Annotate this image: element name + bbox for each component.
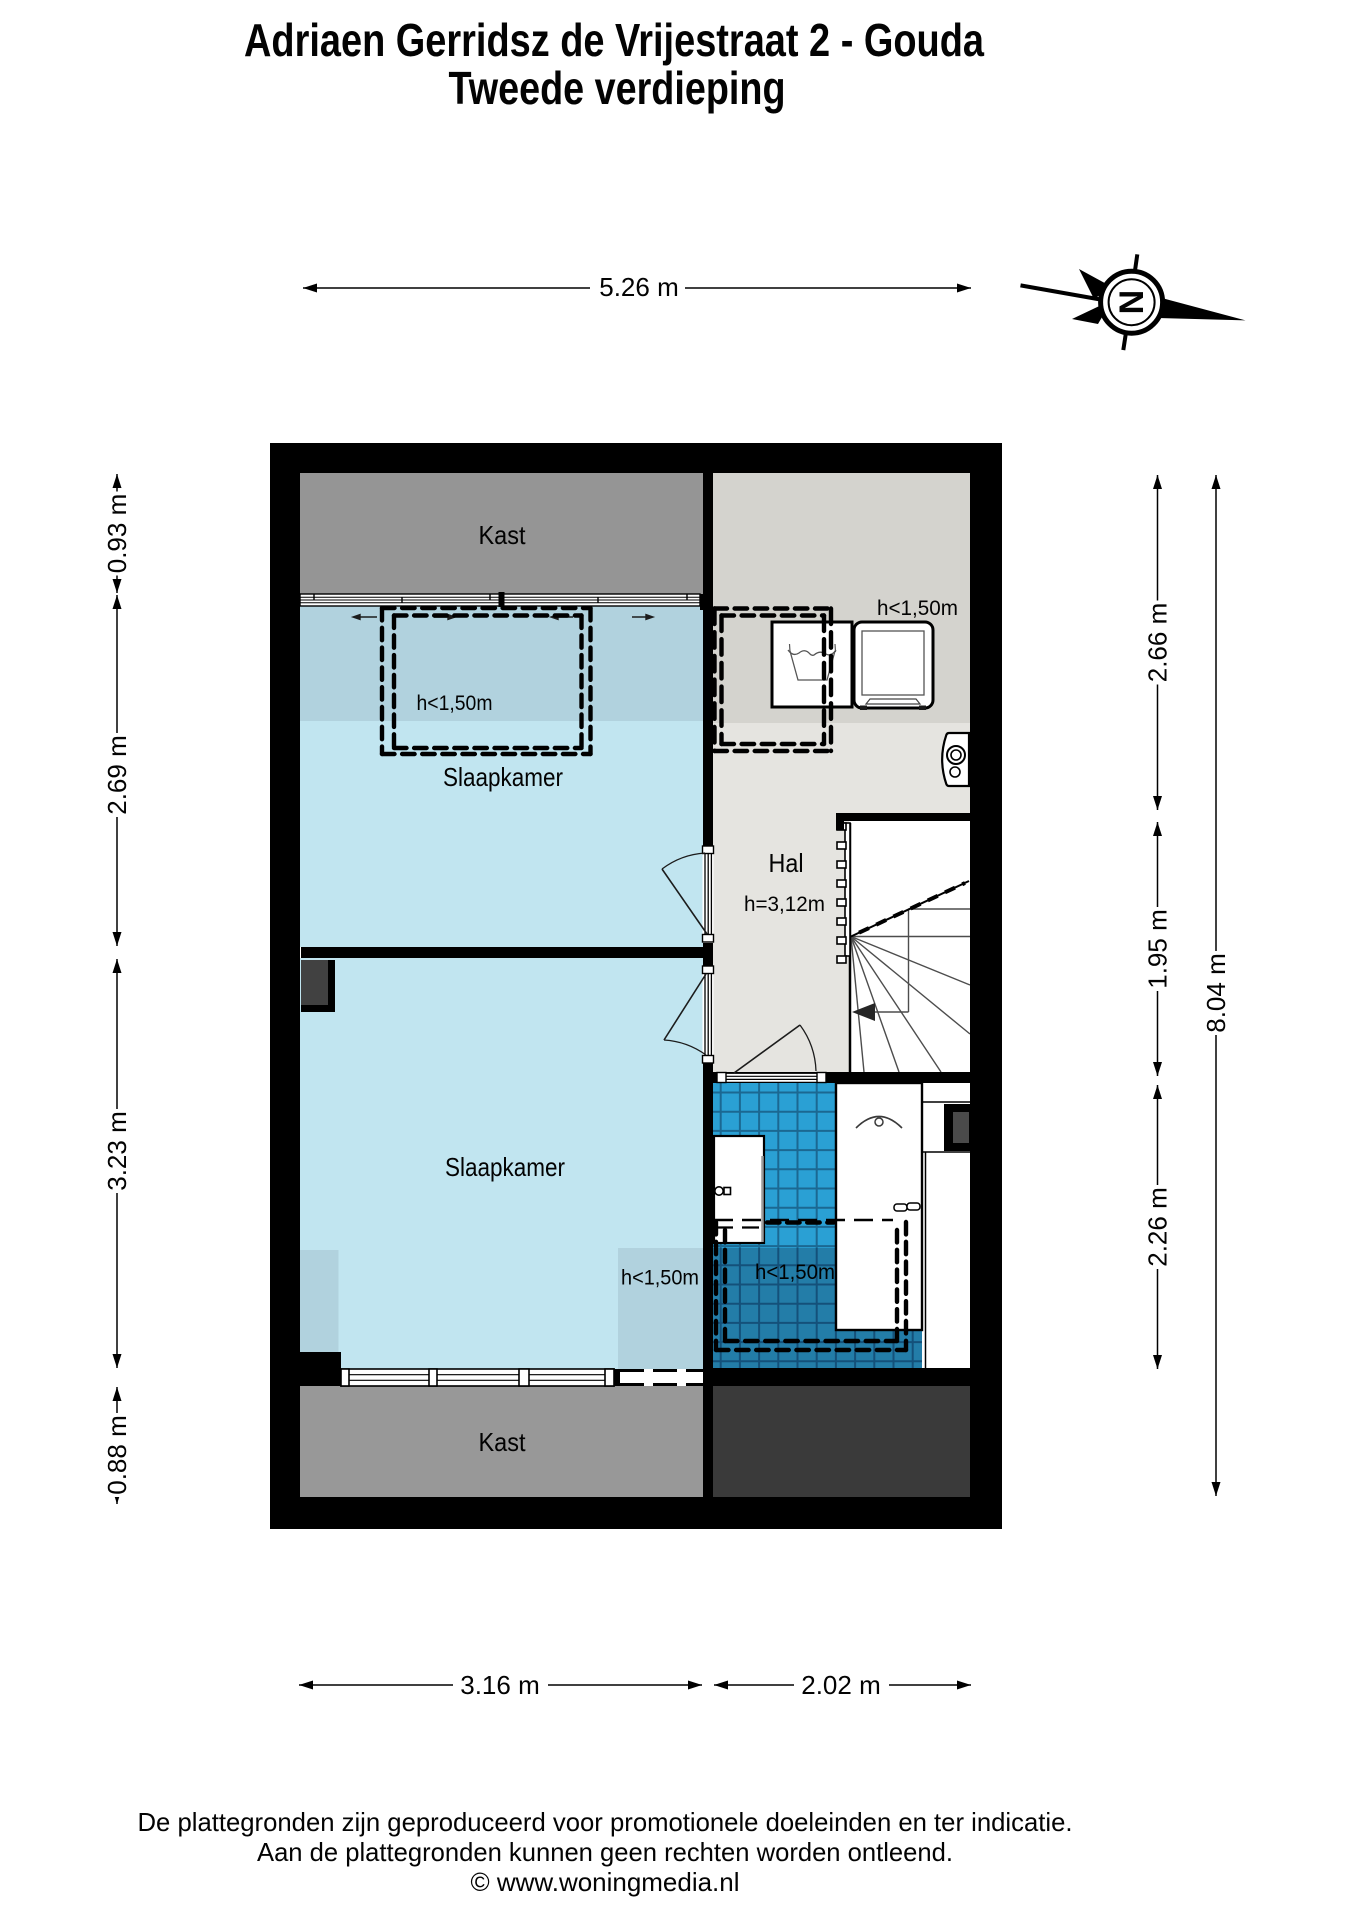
svg-text:De plattegronden zijn geproduc: De plattegronden zijn geproduceerd voor … — [138, 1807, 1073, 1837]
svg-text:2.69 m: 2.69 m — [102, 735, 132, 815]
svg-text:0.88 m: 0.88 m — [102, 1415, 132, 1495]
svg-text:h<1,50m: h<1,50m — [877, 597, 958, 620]
svg-text:2.02 m: 2.02 m — [801, 1670, 881, 1700]
svg-text:5.26 m: 5.26 m — [599, 272, 679, 302]
svg-text:N: N — [1112, 290, 1150, 315]
svg-text:2.26 m: 2.26 m — [1143, 1187, 1173, 1267]
svg-text:8.04 m: 8.04 m — [1201, 953, 1231, 1033]
svg-text:Kast: Kast — [479, 1427, 527, 1457]
svg-text:h<1,50m: h<1,50m — [755, 1261, 835, 1284]
svg-text:h<1,50m: h<1,50m — [621, 1267, 699, 1290]
svg-text:© www.woningmedia.nl: © www.woningmedia.nl — [471, 1867, 740, 1897]
svg-text:2.66 m: 2.66 m — [1143, 603, 1173, 683]
svg-text:0.93 m: 0.93 m — [102, 494, 132, 574]
svg-text:Aan de plattegronden kunnen ge: Aan de plattegronden kunnen geen rechten… — [257, 1837, 953, 1867]
svg-text:Adriaen Gerridsz de Vrijestraa: Adriaen Gerridsz de Vrijestraat 2 - Goud… — [244, 14, 984, 66]
svg-text:Hal: Hal — [769, 848, 804, 878]
svg-text:1.95 m: 1.95 m — [1143, 909, 1173, 989]
svg-text:3.16 m: 3.16 m — [460, 1670, 540, 1700]
svg-text:Slaapkamer: Slaapkamer — [445, 1152, 565, 1182]
svg-text:h=3,12m: h=3,12m — [744, 892, 825, 916]
svg-text:Slaapkamer: Slaapkamer — [443, 762, 563, 792]
svg-text:Tweede verdieping: Tweede verdieping — [449, 62, 786, 114]
svg-text:h<1,50m: h<1,50m — [417, 692, 493, 715]
svg-text:3.23 m: 3.23 m — [102, 1111, 132, 1191]
svg-text:Kast: Kast — [479, 520, 527, 550]
